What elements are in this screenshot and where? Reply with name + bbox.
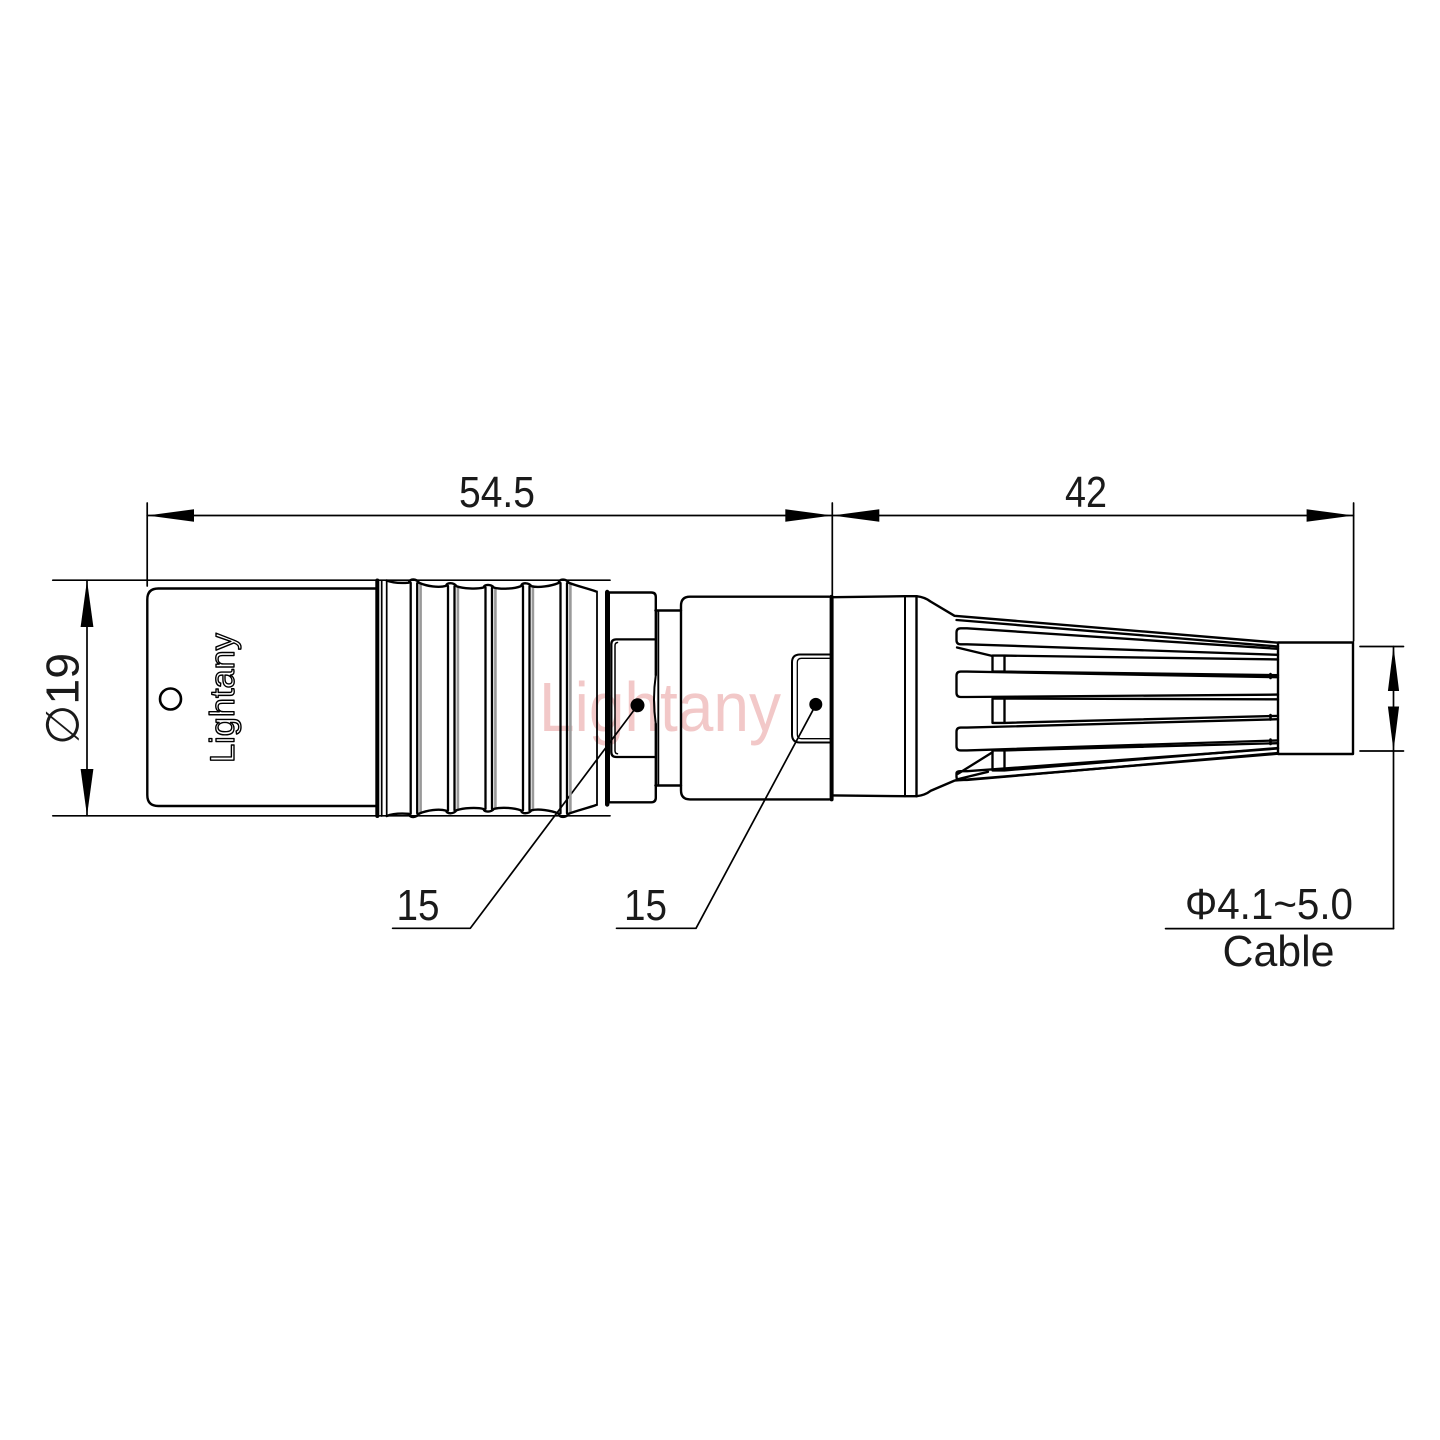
svg-text:15: 15 xyxy=(397,881,440,930)
svg-text:∅19: ∅19 xyxy=(37,653,89,745)
svg-text:15: 15 xyxy=(624,881,667,930)
svg-text:Lightany: Lightany xyxy=(539,668,781,746)
svg-text:Lightany: Lightany xyxy=(204,633,242,763)
svg-text:54.5: 54.5 xyxy=(459,468,535,517)
svg-text:Φ4.1~5.0: Φ4.1~5.0 xyxy=(1185,880,1353,929)
svg-text:42: 42 xyxy=(1065,468,1107,517)
svg-text:Cable: Cable xyxy=(1223,927,1335,976)
